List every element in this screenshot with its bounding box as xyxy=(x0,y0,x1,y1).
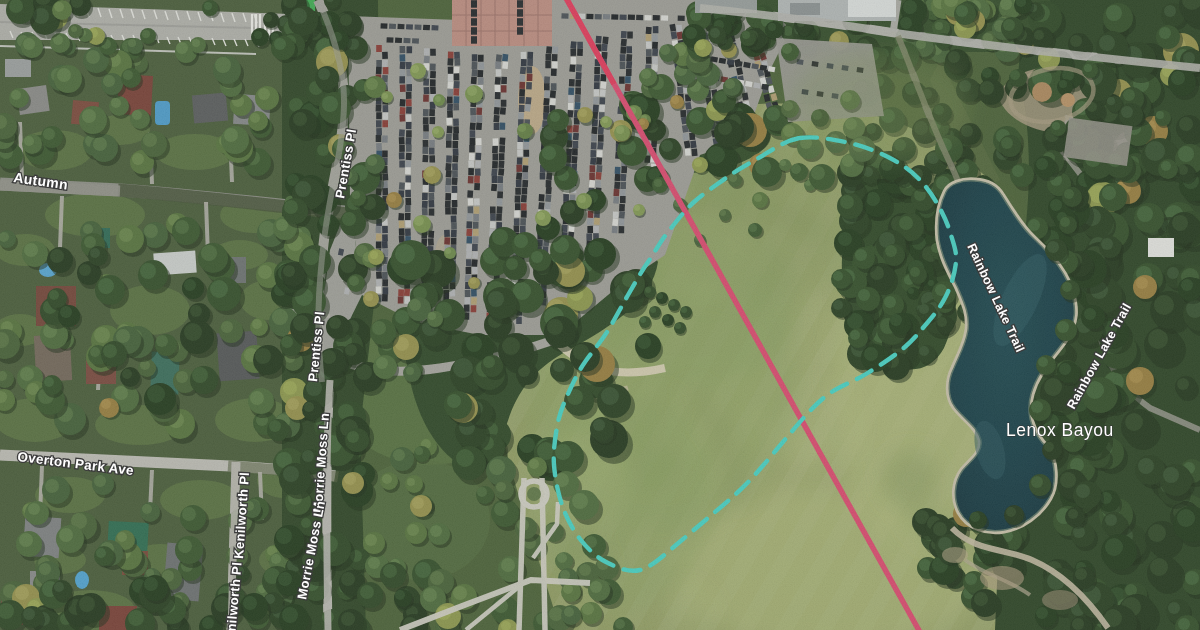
svg-text:Lenox Bayou: Lenox Bayou xyxy=(1006,420,1114,440)
